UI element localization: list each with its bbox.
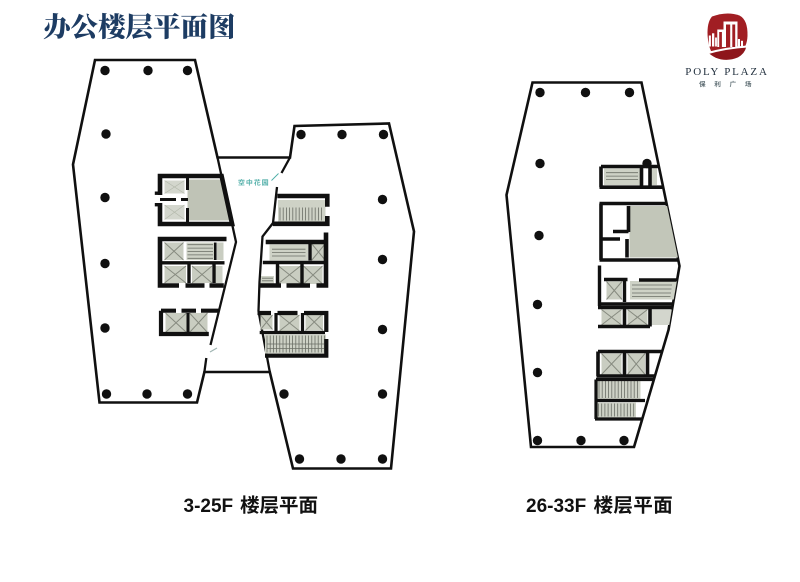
svg-text:POLY PLAZA: POLY PLAZA — [685, 66, 768, 78]
svg-text:3-25F: 3-25F — [184, 496, 234, 517]
svg-text:26-33F: 26-33F — [526, 496, 586, 517]
